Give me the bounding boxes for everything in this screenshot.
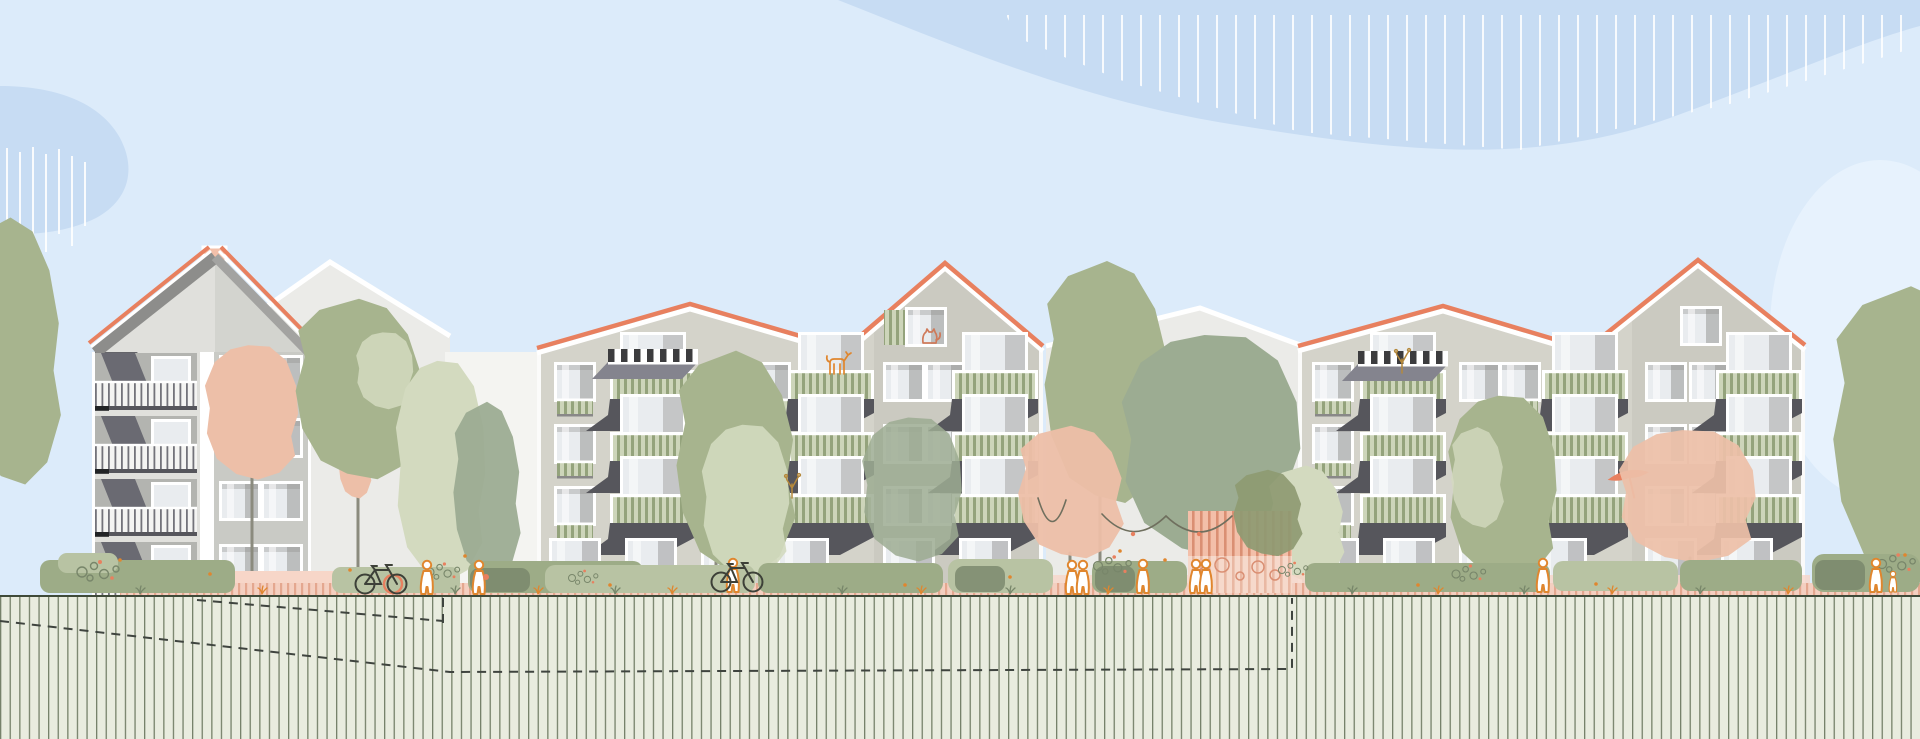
window (554, 362, 596, 402)
hedge (758, 563, 943, 593)
pedestrian (1077, 561, 1089, 594)
pedestrian (421, 561, 433, 594)
juliet-railing (557, 461, 593, 479)
window (261, 481, 303, 521)
juliet-railing (557, 523, 593, 541)
hedge (1553, 561, 1678, 591)
tree-sage-overlay (862, 418, 962, 562)
pedestrian (1137, 560, 1149, 593)
tree-salmon (1619, 430, 1756, 562)
tree-salmon (205, 345, 298, 479)
window (1459, 362, 1501, 402)
balcony (95, 479, 197, 537)
shrub-dark (955, 566, 1005, 592)
gable-shutter (884, 310, 906, 345)
gable-window (905, 307, 947, 347)
balcony (95, 353, 197, 411)
garland-light (1197, 532, 1201, 536)
ground-section (0, 595, 1920, 739)
adult (1870, 559, 1882, 592)
elevation-canvas (0, 0, 1920, 739)
window (219, 481, 261, 521)
child (1889, 571, 1897, 592)
garland-light (1131, 532, 1135, 536)
window (883, 362, 925, 402)
ground-hatch (0, 597, 1920, 739)
elevation-illustration (0, 0, 1920, 739)
pedestrian (1537, 559, 1549, 592)
juliet-railing (557, 399, 593, 417)
gable-window (1680, 306, 1722, 346)
window (1499, 362, 1541, 402)
shrub-dark (1815, 560, 1865, 590)
balcony (95, 416, 197, 474)
hedge (1305, 563, 1550, 592)
window (1312, 362, 1354, 402)
juliet-railing (1315, 399, 1351, 417)
tree-pale (702, 425, 789, 579)
hedge (58, 553, 118, 573)
pedestrian (1200, 560, 1212, 593)
window (1645, 362, 1687, 402)
mid-gable-window (884, 307, 947, 347)
bag (483, 574, 489, 580)
hedge (1680, 560, 1802, 591)
mid-balconies (586, 332, 1038, 555)
